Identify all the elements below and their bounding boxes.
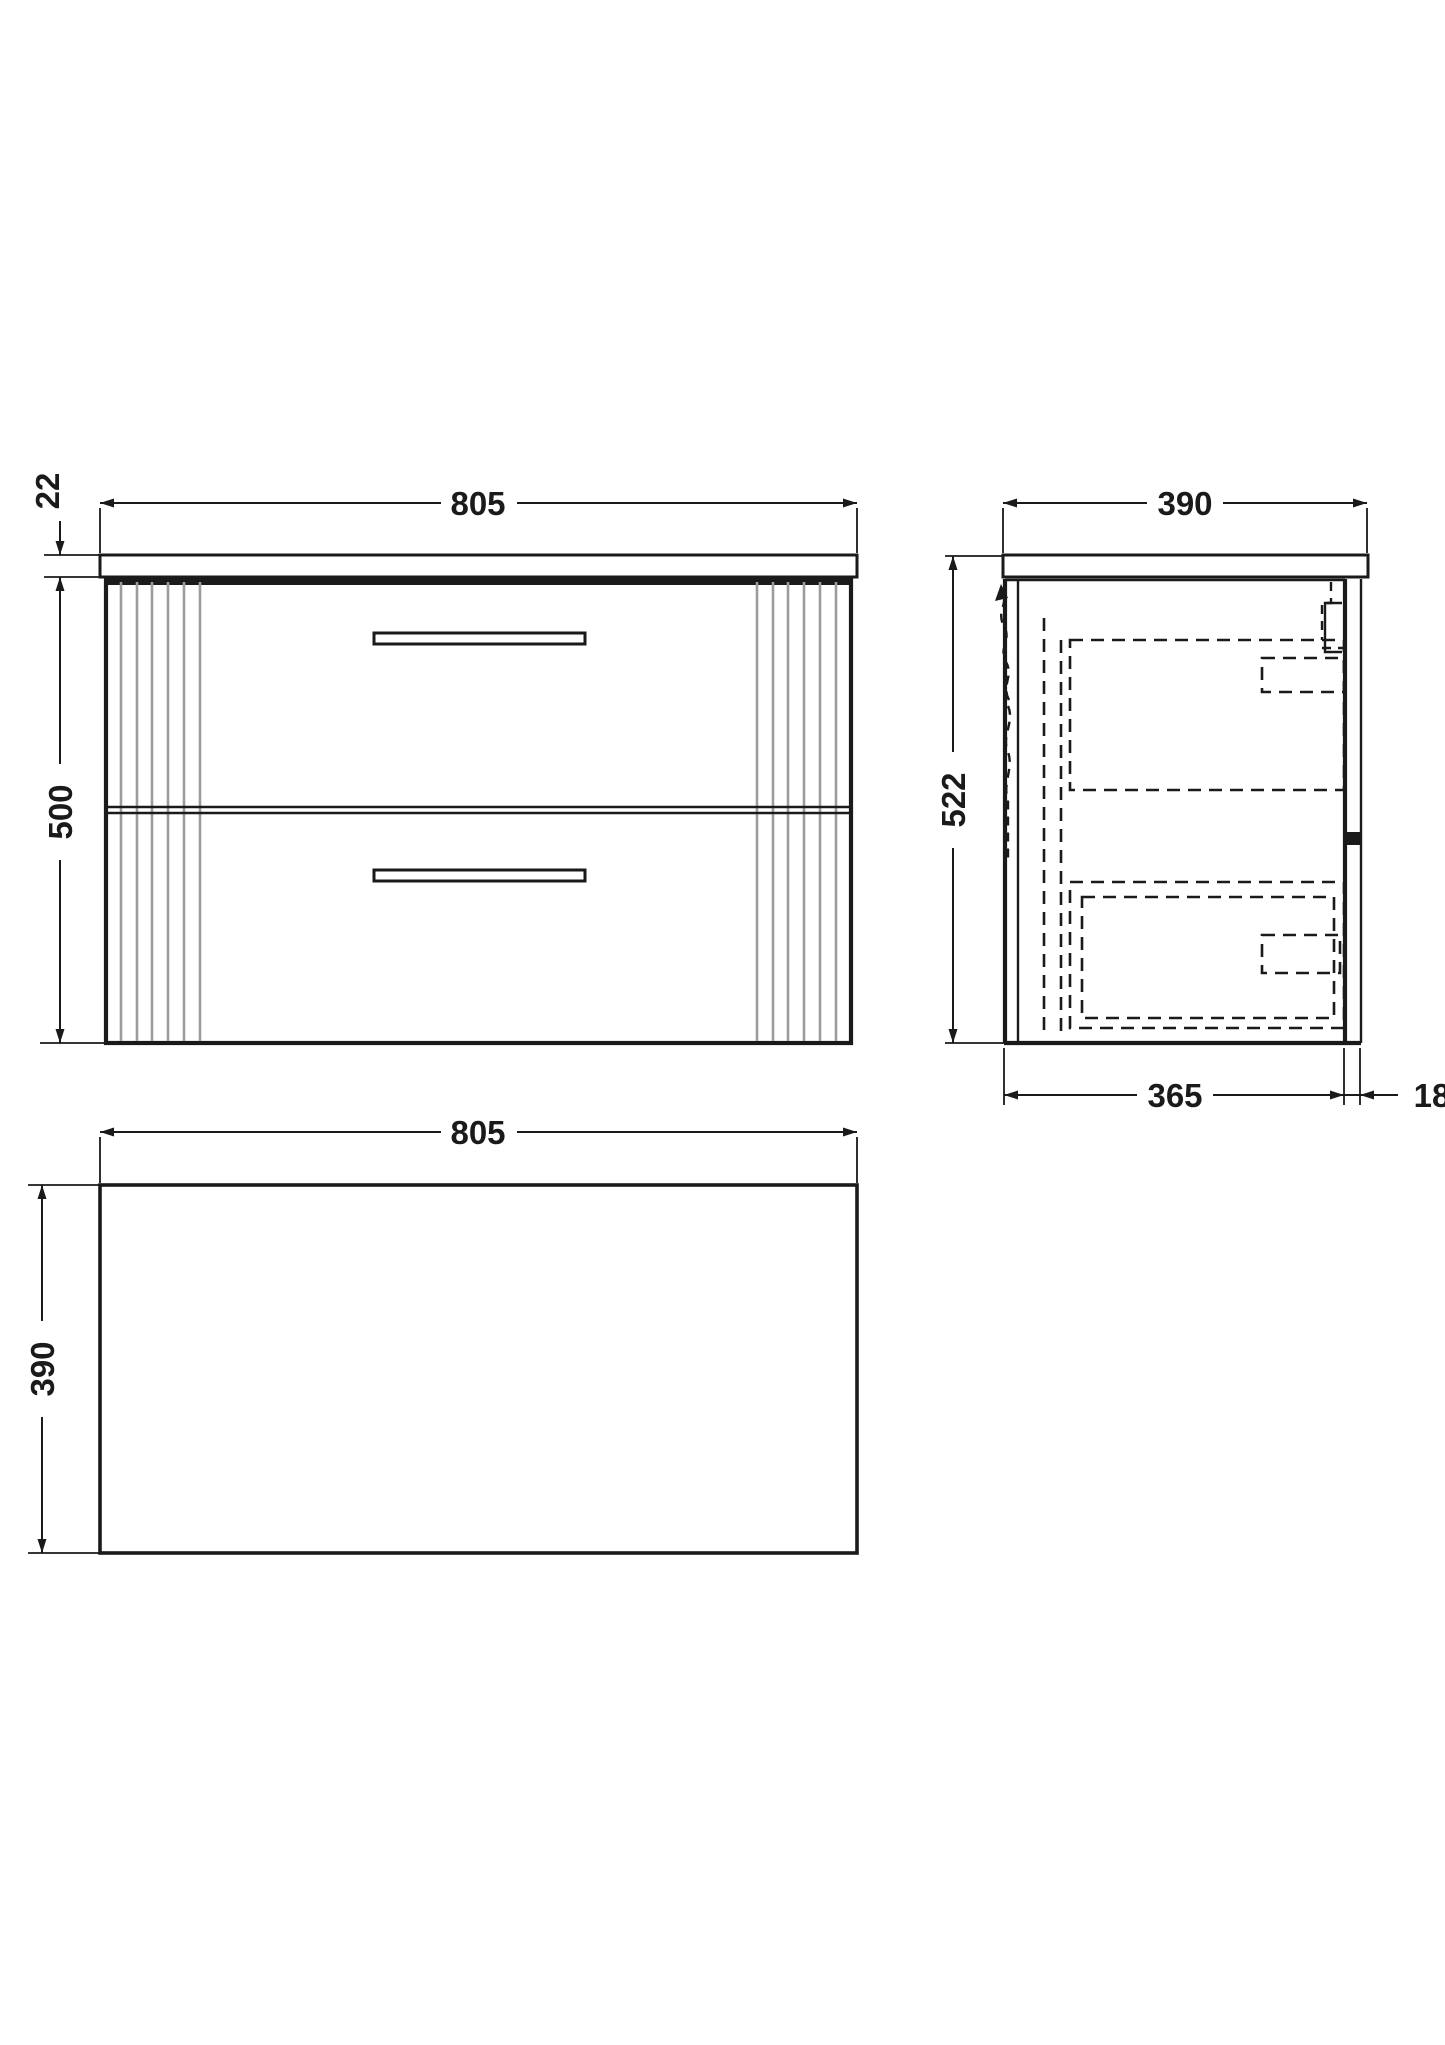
countertop-side [1003,555,1368,577]
label-group: 500 [42,764,79,860]
side-depth-label: 390 [1157,485,1212,522]
arrowhead-right [1353,499,1367,508]
front-height-dimension: 500 [40,577,106,1043]
side-height-label: 522 [935,772,972,827]
lower-drawer-box-outer [1070,882,1344,1028]
plan-depth-dimension: 390 [24,1185,100,1553]
plan-width-label: 805 [450,1114,505,1151]
arrowhead-right [843,499,857,508]
arrowhead-left [100,499,114,508]
arrowhead-right [843,1128,857,1137]
arrowhead-left [1004,1091,1018,1100]
arrowhead-wall [1360,1091,1374,1100]
cabinet-body-front [106,579,851,1043]
bracket-step [1325,603,1342,652]
back-fixing-block [1344,832,1361,845]
label-group: 522 [935,752,972,848]
technical-drawing-canvas: 805 22 500 [0,0,1445,2045]
plan-view: 805 390 [24,1114,857,1553]
countertop-front [100,555,857,577]
arrowhead-up [56,577,65,591]
arrowhead-up [38,1185,47,1199]
front-view: 805 22 500 [29,461,857,1043]
worktop-plan-outline [100,1185,857,1553]
side-view: 390 522 [935,485,1445,1114]
arrowhead-left [100,1128,114,1137]
label-group: 22 [29,461,66,521]
arrowhead-down [56,1029,65,1043]
lower-drawer-runner [1262,935,1340,973]
vanity-drawing-svg: 805 22 500 [0,0,1445,2045]
front-width-label: 805 [450,485,505,522]
wall-bracket-detail [1322,582,1345,652]
upper-drawer-runner [1262,658,1344,692]
side-height-dimension: 522 [935,556,1004,1043]
arrowhead-left [1003,499,1017,508]
upper-drawer-box [1070,640,1344,790]
arrowhead-mid [1330,1091,1344,1100]
label-group: 390 [24,1321,61,1417]
arrowhead-up [949,556,958,570]
arrowhead-down [949,1029,958,1043]
upper-drawer-handle [374,633,585,644]
arrowhead-down [56,541,65,555]
arrowhead-down [38,1539,47,1553]
side-bottom-dimensions: 365 18 [1004,1048,1445,1114]
front-counter-thickness-dimension: 22 [29,461,100,577]
side-back-gap-label: 18 [1414,1077,1445,1114]
lower-drawer-box-inner [1082,897,1334,1018]
front-counter-thickness-label: 22 [29,473,66,510]
front-width-dimension: 805 [100,485,857,553]
front-height-label: 500 [42,784,79,839]
side-body-depth-label: 365 [1147,1077,1202,1114]
plan-depth-label: 390 [24,1341,61,1396]
adjustment-arrow-detail [995,584,1010,860]
side-depth-dimension: 390 [1003,485,1367,553]
lower-drawer-handle [374,870,585,881]
plan-width-dimension: 805 [100,1114,857,1183]
hidden-drawer-internals [1044,618,1344,1032]
